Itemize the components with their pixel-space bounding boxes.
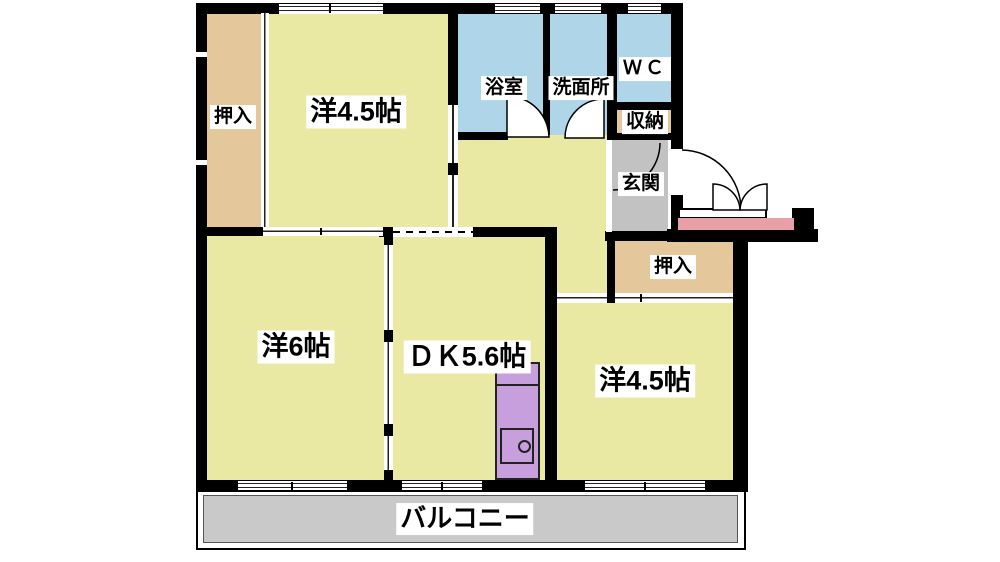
wall-post-d bbox=[384, 470, 393, 480]
window-bedroom-top bbox=[279, 4, 383, 14]
wall-porch-cap bbox=[792, 208, 814, 242]
toilet-label: ＷＣ bbox=[619, 57, 671, 81]
wall-minihall-closet bbox=[607, 231, 615, 296]
sliding-door-bedroom-right-top bbox=[557, 293, 733, 303]
window-tick bbox=[644, 482, 646, 491]
window-toilet bbox=[628, 4, 661, 13]
balcony-label: バルコニー bbox=[396, 503, 533, 535]
open-passage-hall-dk bbox=[393, 227, 473, 237]
entrance-door-leaf-right bbox=[740, 184, 767, 210]
entrance-door-opening bbox=[671, 149, 683, 195]
window-tick bbox=[441, 482, 443, 491]
sliding-door-bedroomleft-dk bbox=[384, 235, 393, 480]
wall-post-e bbox=[607, 293, 615, 303]
sliding-door-bedroom-top-b bbox=[448, 175, 458, 227]
wall-right-upper bbox=[671, 3, 683, 149]
sliding-door-closet-top-left bbox=[261, 13, 269, 227]
entrance-door-leaf-left bbox=[713, 184, 740, 210]
wall-joint-mark bbox=[196, 160, 207, 165]
window-washroom bbox=[555, 4, 601, 13]
door-tick bbox=[640, 294, 642, 302]
sliding-door-bedroom-top-a bbox=[448, 105, 458, 163]
bedroom-left-label: 洋6帖 bbox=[257, 330, 334, 363]
wall-right-lower bbox=[733, 238, 748, 492]
kitchen-faucet bbox=[518, 440, 531, 453]
door-tick bbox=[320, 228, 322, 235]
bedroom-top-label: 洋4.5帖 bbox=[306, 95, 406, 128]
floorplan-canvas: 押入 洋4.5帖 浴室 洗面所 ＷＣ 収納 玄関 押入 洋6帖 ＤＫ5.6帖 洋… bbox=[0, 0, 1000, 562]
wall-bedroom-top-right-a bbox=[448, 13, 458, 105]
entrance-label: 玄関 bbox=[618, 172, 664, 196]
wall-bath-wash bbox=[543, 13, 550, 135]
wall-post-c bbox=[384, 424, 393, 436]
closet-top-left-label: 押入 bbox=[210, 105, 256, 129]
hall-floor bbox=[455, 135, 612, 235]
storage-label: 収納 bbox=[622, 110, 668, 134]
washroom-label: 洗面所 bbox=[548, 76, 613, 100]
entrance-step-edge bbox=[606, 140, 612, 232]
wall-wc-bottom bbox=[607, 102, 683, 110]
dining-kitchen-label: ＤＫ5.6帖 bbox=[404, 340, 531, 373]
wall-mid-left bbox=[196, 227, 263, 236]
wall-joint-mark bbox=[196, 52, 207, 57]
kitchen-counter-line bbox=[496, 384, 539, 386]
wall-left bbox=[196, 3, 207, 492]
wall-dk-right bbox=[545, 227, 557, 480]
window-bathroom bbox=[495, 4, 540, 13]
wall-post-b bbox=[384, 330, 393, 342]
wall-entrance-bottom bbox=[605, 231, 683, 241]
wall-storage-bottom bbox=[607, 133, 683, 140]
bathroom-label: 浴室 bbox=[481, 76, 527, 100]
wall-bedroom-top-right-b bbox=[448, 163, 458, 175]
closet-right-label: 押入 bbox=[650, 255, 696, 279]
mini-hall-floor bbox=[550, 227, 607, 303]
window-tick bbox=[329, 4, 331, 13]
wall-post-a bbox=[384, 235, 393, 245]
sliding-door-bedrooms-divider bbox=[263, 227, 383, 236]
entrance-door-swing-arc bbox=[682, 150, 741, 210]
window-tick bbox=[291, 482, 293, 491]
bedroom-right-label: 洋4.5帖 bbox=[595, 364, 695, 397]
porch-strip bbox=[678, 218, 794, 230]
